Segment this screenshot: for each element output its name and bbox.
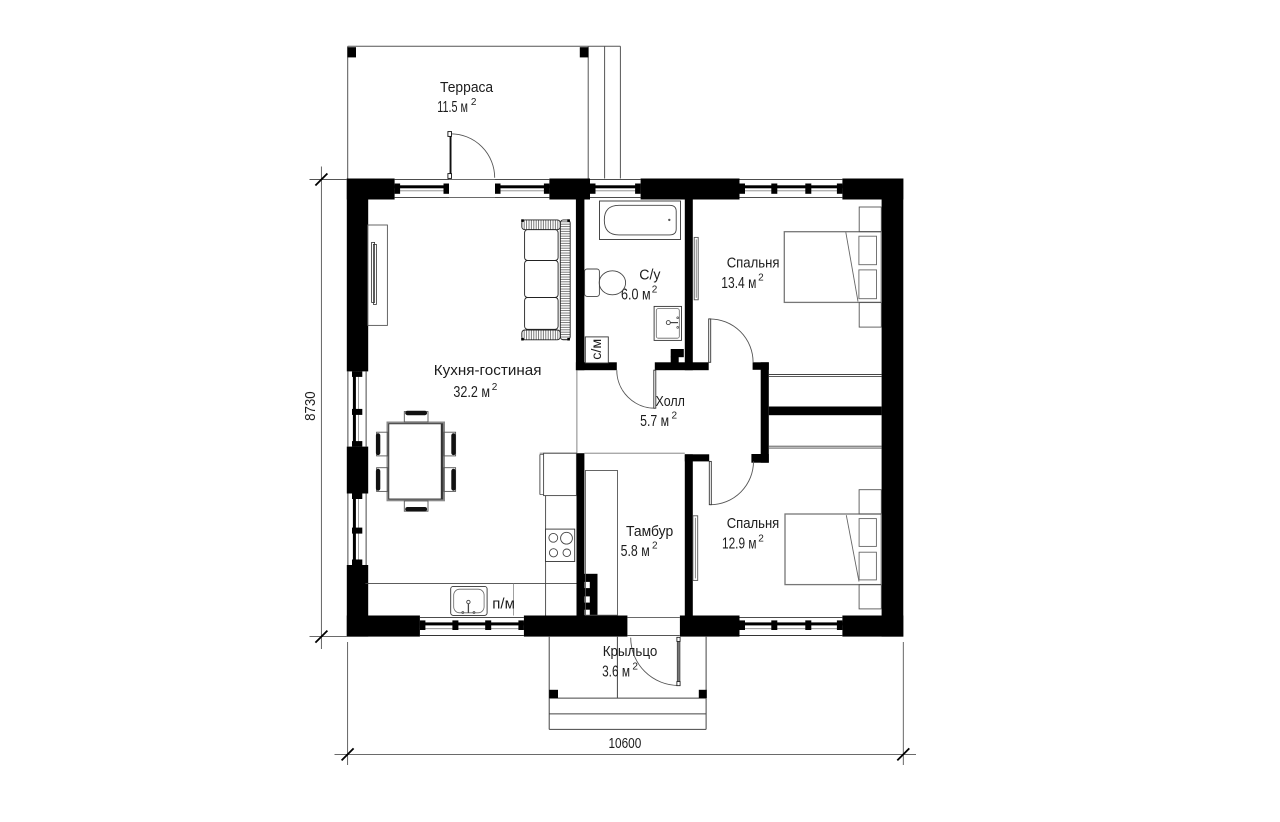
svg-text:Терраса: Терраса <box>440 79 494 96</box>
svg-text:Спальня: Спальня <box>727 515 780 532</box>
svg-text:Кухня-гостиная: Кухня-гостиная <box>434 362 542 379</box>
svg-text:8730: 8730 <box>303 391 319 421</box>
svg-text:6.0 м: 6.0 м <box>621 287 651 304</box>
svg-text:С/у: С/у <box>639 266 661 283</box>
svg-text:Спальня: Спальня <box>727 255 780 272</box>
svg-text:п/м: п/м <box>492 596 515 613</box>
svg-text:с/м: с/м <box>588 339 604 360</box>
svg-text:2: 2 <box>471 97 477 108</box>
svg-text:2: 2 <box>652 541 658 552</box>
svg-text:Крыльцо: Крыльцо <box>603 643 658 660</box>
svg-text:12.9 м: 12.9 м <box>722 536 757 553</box>
svg-text:2: 2 <box>758 534 764 545</box>
svg-text:Холл: Холл <box>656 393 685 410</box>
svg-text:32.2 м: 32.2 м <box>453 384 490 401</box>
svg-text:2: 2 <box>632 661 638 672</box>
svg-text:5.8 м: 5.8 м <box>621 543 650 560</box>
svg-text:2: 2 <box>652 284 658 295</box>
svg-text:3.6 м: 3.6 м <box>602 664 630 681</box>
svg-text:11.5 м: 11.5 м <box>437 99 468 116</box>
svg-text:13.4 м: 13.4 м <box>721 275 756 292</box>
svg-text:5.7 м: 5.7 м <box>640 413 669 430</box>
svg-text:10600: 10600 <box>609 736 642 752</box>
svg-text:2: 2 <box>758 272 764 283</box>
svg-text:2: 2 <box>492 382 498 393</box>
svg-text:2: 2 <box>672 411 678 422</box>
svg-text:Тамбур: Тамбур <box>626 523 673 540</box>
